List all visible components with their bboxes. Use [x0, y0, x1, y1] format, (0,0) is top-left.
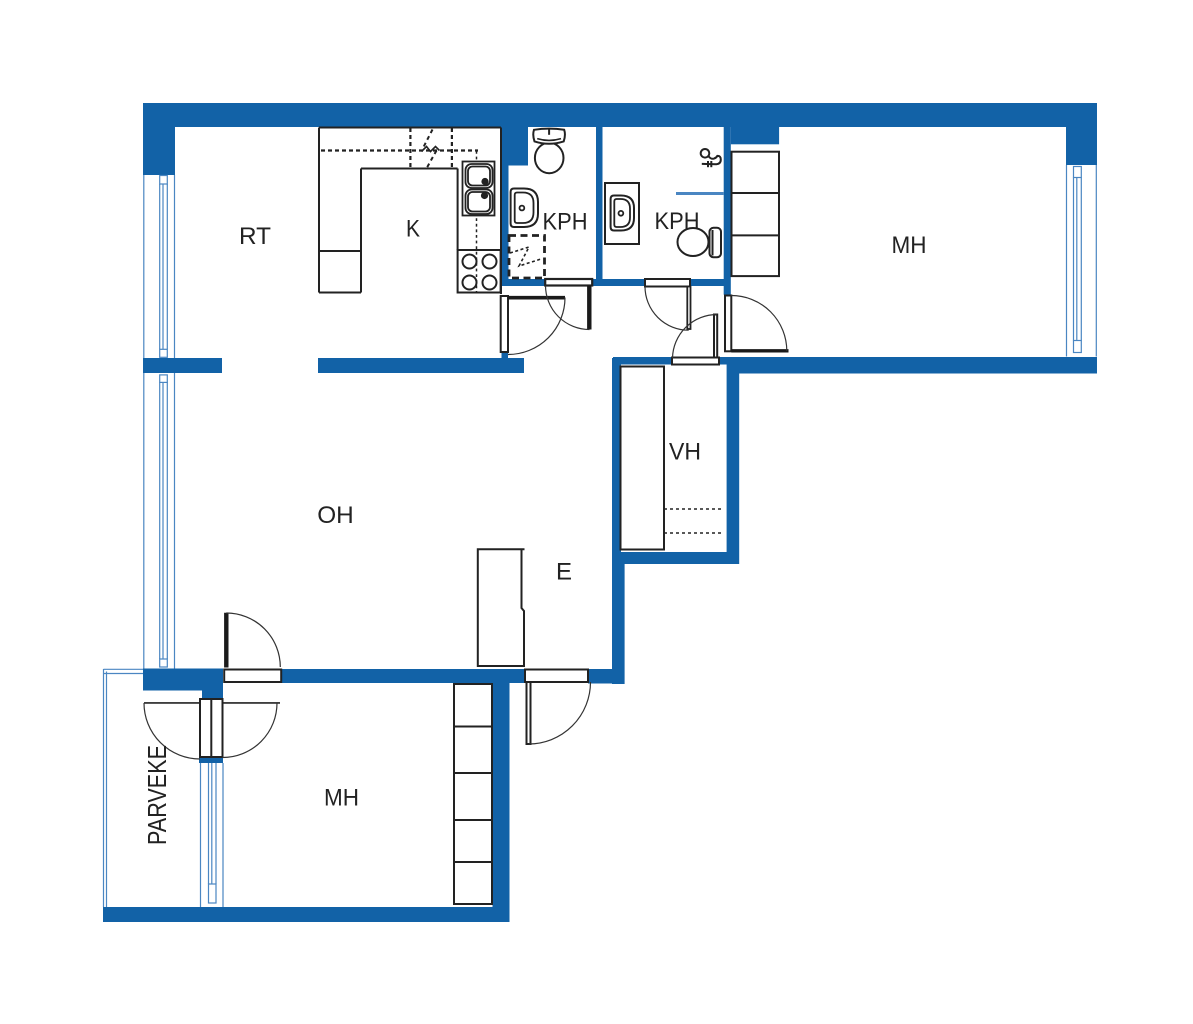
svg-text:RT: RT — [239, 223, 271, 250]
svg-text:MH: MH — [324, 785, 359, 812]
svg-text:KPH: KPH — [655, 208, 700, 235]
svg-text:KPH: KPH — [543, 209, 588, 236]
svg-text:PARVEKE: PARVEKE — [144, 745, 172, 845]
svg-text:VH: VH — [669, 439, 701, 466]
svg-text:OH: OH — [317, 502, 354, 529]
svg-text:MH: MH — [892, 232, 927, 259]
svg-text:E: E — [556, 559, 572, 586]
svg-text:K: K — [406, 216, 420, 243]
